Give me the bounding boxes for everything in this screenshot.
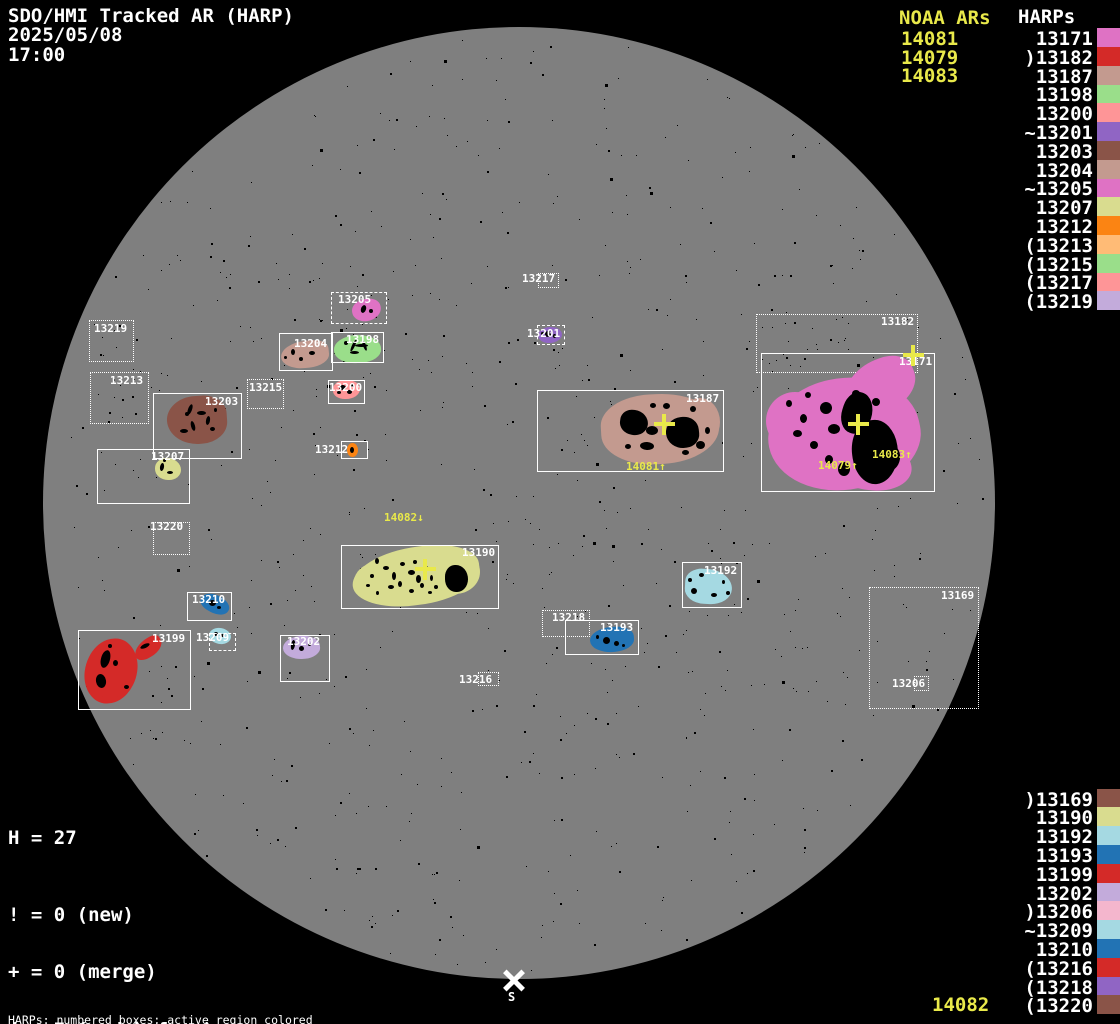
harp-region-label: 13187 bbox=[686, 392, 719, 405]
harp-region-label: 13202 bbox=[287, 635, 320, 648]
harp-region-label: 13216 bbox=[459, 673, 492, 686]
harp-region-label: 13206 bbox=[892, 677, 925, 690]
harp-legend-row: 13199 bbox=[1036, 866, 1093, 885]
harp-legend-color-swatch bbox=[1097, 939, 1120, 958]
solar-harp-plot: 1321913213132151320313207132201321013209… bbox=[0, 0, 1120, 1024]
noaa-ar-label: 14082↓ bbox=[384, 511, 424, 524]
harp-legend-color-swatch bbox=[1097, 141, 1120, 160]
harp-legend-color-swatch bbox=[1097, 958, 1120, 977]
harp-legend-row: )13182 bbox=[1024, 49, 1093, 68]
footnote-harps: HARPs: numbered boxes; active region col… bbox=[8, 1015, 410, 1024]
harp-legend-color-swatch bbox=[1097, 995, 1120, 1014]
harp-legend-color-swatch bbox=[1097, 883, 1120, 902]
noaa-ar-list-item: 14081 bbox=[901, 30, 958, 49]
harp-legend-color-swatch bbox=[1097, 235, 1120, 254]
harp-legend-color-swatch bbox=[1097, 291, 1120, 310]
harp-region-label: 13201 bbox=[527, 327, 560, 340]
noaa-cross-bar bbox=[662, 414, 666, 435]
south-label: S bbox=[508, 991, 515, 1004]
harp-region-label: 13219 bbox=[94, 322, 127, 335]
harp-legend-row: 13203 bbox=[1036, 143, 1093, 162]
harp-legend-color-swatch bbox=[1097, 901, 1120, 920]
harp-legend-color-swatch bbox=[1097, 920, 1120, 939]
harp-region-label: 13193 bbox=[600, 621, 633, 634]
harp-region-label: 13192 bbox=[704, 564, 737, 577]
harp-region-label: 13205 bbox=[338, 293, 371, 306]
harp-region-label: 13220 bbox=[150, 520, 183, 533]
noaa-cross-bar bbox=[856, 414, 860, 435]
harp-legend-color-swatch bbox=[1097, 85, 1120, 104]
harp-legend-color-swatch bbox=[1097, 47, 1120, 66]
harp-region-label: 13203 bbox=[205, 395, 238, 408]
harp-region-label: 13199 bbox=[152, 632, 185, 645]
harp-region-label: 13182 bbox=[881, 315, 914, 328]
harp-legend-color-swatch bbox=[1097, 197, 1120, 216]
footnotes: HARPs: numbered boxes; active region col… bbox=[8, 991, 410, 1024]
harp-legend-color-swatch bbox=[1097, 977, 1120, 996]
harp-legend-color-swatch bbox=[1097, 179, 1120, 198]
harp-legend-color-swatch bbox=[1097, 103, 1120, 122]
noaa-ar-label-limb: 14082 bbox=[932, 996, 989, 1015]
harp-region-label: 13198 bbox=[346, 333, 379, 346]
harp-legend-row: (13213 bbox=[1024, 237, 1093, 256]
harps-title: HARPs bbox=[1018, 8, 1075, 27]
harp-region-label: 13213 bbox=[110, 374, 143, 387]
harp-region-label: 13204 bbox=[294, 337, 327, 350]
harp-legend-color-swatch bbox=[1097, 826, 1120, 845]
noaa-ars-title: NOAA ARs bbox=[899, 9, 991, 28]
harp-legend-color-swatch bbox=[1097, 789, 1120, 808]
harp-legend-color-swatch bbox=[1097, 864, 1120, 883]
stat-line-merge: + = 0 (merge) bbox=[8, 963, 225, 982]
harp-legend-color-swatch bbox=[1097, 216, 1120, 235]
plot-time: 17:00 bbox=[8, 46, 65, 65]
harp-legend-color-swatch bbox=[1097, 807, 1120, 826]
harp-region-label: 13210 bbox=[192, 593, 225, 606]
harp-region-label: 13215 bbox=[249, 381, 282, 394]
noaa-ar-list-item: 14083 bbox=[901, 67, 958, 86]
noaa-ar-label: 14079↑ bbox=[818, 459, 858, 472]
noaa-ar-label: 14083↑ bbox=[872, 448, 912, 461]
harp-legend-row: (13220 bbox=[1024, 997, 1093, 1016]
harp-legend-color-swatch bbox=[1097, 28, 1120, 47]
harp-legend-color-swatch bbox=[1097, 845, 1120, 864]
harp-region-label: 13200 bbox=[329, 381, 362, 394]
plot-date: 2025/05/08 bbox=[8, 26, 122, 45]
harp-count: H = 27 bbox=[8, 829, 77, 848]
harp-region-label: 13212 bbox=[315, 443, 348, 456]
harp-region-label: 13207 bbox=[151, 450, 184, 463]
harp-legend-color-swatch bbox=[1097, 254, 1120, 273]
harp-region-label: 13209 bbox=[196, 631, 229, 644]
noaa-cross-bar bbox=[423, 559, 427, 580]
harp-legend-color-swatch bbox=[1097, 66, 1120, 85]
harp-legend-color-swatch bbox=[1097, 273, 1120, 292]
noaa-ar-label: 14081↑ bbox=[626, 460, 666, 473]
stat-line-new: ! = 0 (new) bbox=[8, 906, 225, 925]
harp-region-label: 13169 bbox=[941, 589, 974, 602]
noaa-cross-bar bbox=[911, 345, 915, 366]
harp-legend-color-swatch bbox=[1097, 160, 1120, 179]
harp-legend-row: (13219 bbox=[1024, 293, 1093, 312]
harp-region-label: 13217 bbox=[522, 272, 555, 285]
harp-legend-row: (13216 bbox=[1024, 960, 1093, 979]
harp-legend-color-swatch bbox=[1097, 122, 1120, 141]
harp-region-label: 13190 bbox=[462, 546, 495, 559]
